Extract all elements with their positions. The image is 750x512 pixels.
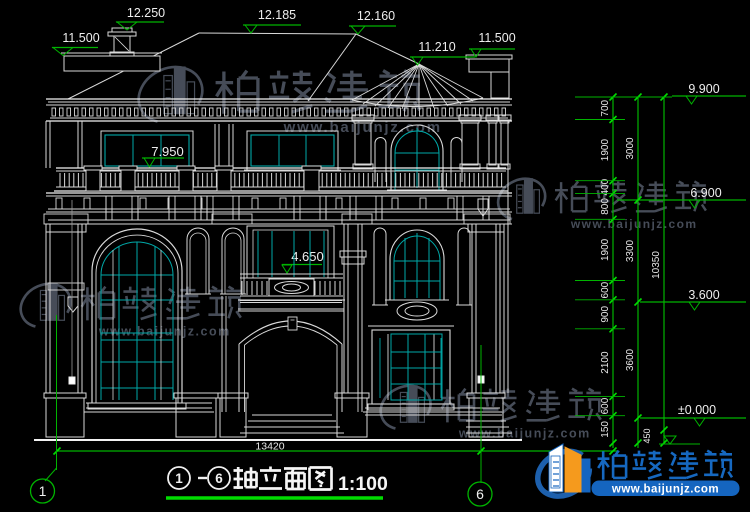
svg-text:12.160: 12.160 (357, 9, 395, 23)
svg-text:3300: 3300 (625, 239, 636, 262)
svg-text:1900: 1900 (600, 139, 611, 162)
svg-text:3600: 3600 (625, 348, 636, 371)
svg-text:150: 150 (600, 421, 611, 438)
svg-text:600: 600 (600, 397, 611, 414)
svg-text:±0.000: ±0.000 (678, 403, 716, 417)
svg-text:www.baijunjz.com: www.baijunjz.com (611, 484, 719, 496)
svg-text:7.950: 7.950 (151, 144, 184, 159)
svg-text:1: 1 (39, 483, 47, 499)
svg-text:6: 6 (215, 471, 223, 486)
svg-text:3.600: 3.600 (688, 288, 719, 302)
svg-text:1:100: 1:100 (338, 473, 388, 495)
svg-text:11.500: 11.500 (62, 31, 99, 45)
svg-text:6.900: 6.900 (690, 186, 721, 200)
svg-text:3000: 3000 (625, 137, 636, 160)
svg-text:2100: 2100 (600, 351, 611, 374)
svg-text:1: 1 (175, 471, 183, 486)
svg-text:700: 700 (600, 99, 611, 116)
svg-text:900: 900 (600, 306, 611, 323)
svg-text:450: 450 (642, 428, 652, 443)
svg-text:4.650: 4.650 (291, 249, 324, 264)
svg-text:www.baijunjz.com: www.baijunjz.com (98, 325, 231, 339)
svg-text:10350: 10350 (651, 251, 662, 279)
svg-text:11.210: 11.210 (418, 40, 455, 54)
svg-text:6: 6 (476, 486, 484, 502)
svg-text:www.baijunjz.com: www.baijunjz.com (458, 427, 591, 441)
svg-text:13420: 13420 (255, 441, 284, 453)
svg-text:9.900: 9.900 (688, 82, 719, 96)
svg-text:12.250: 12.250 (127, 6, 165, 20)
svg-text:1900: 1900 (600, 238, 611, 261)
svg-text:600: 600 (600, 281, 611, 298)
svg-text:800: 800 (600, 198, 611, 215)
svg-text:www.baijunjz.com: www.baijunjz.com (283, 119, 442, 136)
svg-text:11.500: 11.500 (478, 31, 515, 45)
svg-text:12.185: 12.185 (258, 8, 296, 22)
